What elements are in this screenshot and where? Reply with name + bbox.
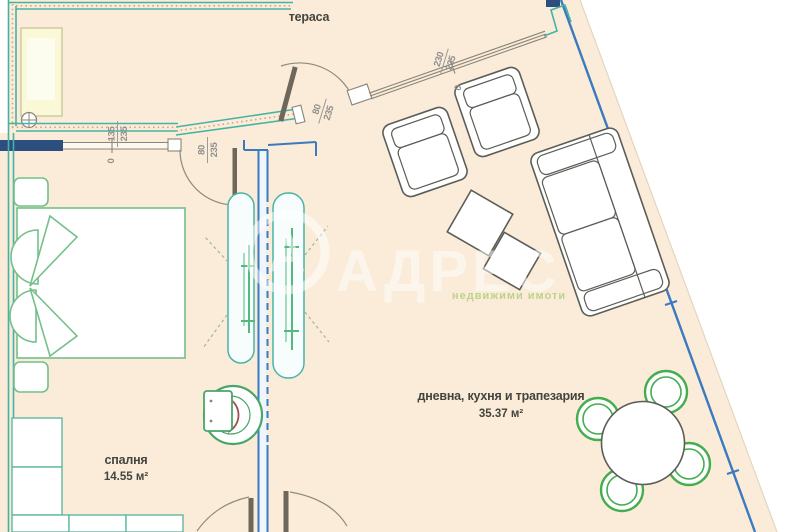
- window-end-post: [168, 139, 181, 151]
- toilet-tank: [204, 391, 232, 431]
- svg-text:235: 235: [119, 126, 130, 142]
- outside-left-strip: [0, 0, 8, 133]
- floorplan-image: А АДРЕС недвижими имоти тераса спалня 14…: [0, 0, 800, 532]
- bedroom-top-wall: [0, 140, 63, 151]
- nightstand-top: [14, 178, 48, 206]
- toilet: [204, 386, 262, 444]
- svg-text:80: 80: [197, 145, 208, 155]
- svg-text:135: 135: [107, 126, 118, 142]
- floor-drain-icon: [22, 113, 37, 128]
- bed: [10, 208, 185, 358]
- watermark-logo-letter: А: [268, 225, 306, 283]
- dining-table: [602, 402, 685, 485]
- wardrobe-left: [228, 193, 255, 363]
- room-label-bedroom: спалня: [104, 453, 147, 467]
- entry-door-living-leaf: [284, 491, 289, 532]
- room-area-bedroom: 14.55 м²: [104, 471, 148, 483]
- room-area-living: 35.37 м²: [479, 408, 523, 420]
- watermark-tagline: недвижими имоти: [452, 290, 566, 302]
- entry-door-bedroom-leaf: [249, 498, 254, 532]
- terrace-planter-inner: [27, 38, 55, 100]
- room-label-terrace: тераса: [289, 10, 331, 24]
- wall-stub-top: [546, 0, 560, 7]
- dim-zero-bedroom-window: 0: [106, 158, 117, 163]
- svg-text:0: 0: [106, 158, 117, 163]
- room-label-living: дневна, кухня и трапезария: [418, 389, 585, 403]
- nightstand-bottom: [14, 362, 48, 392]
- svg-text:235: 235: [209, 142, 220, 158]
